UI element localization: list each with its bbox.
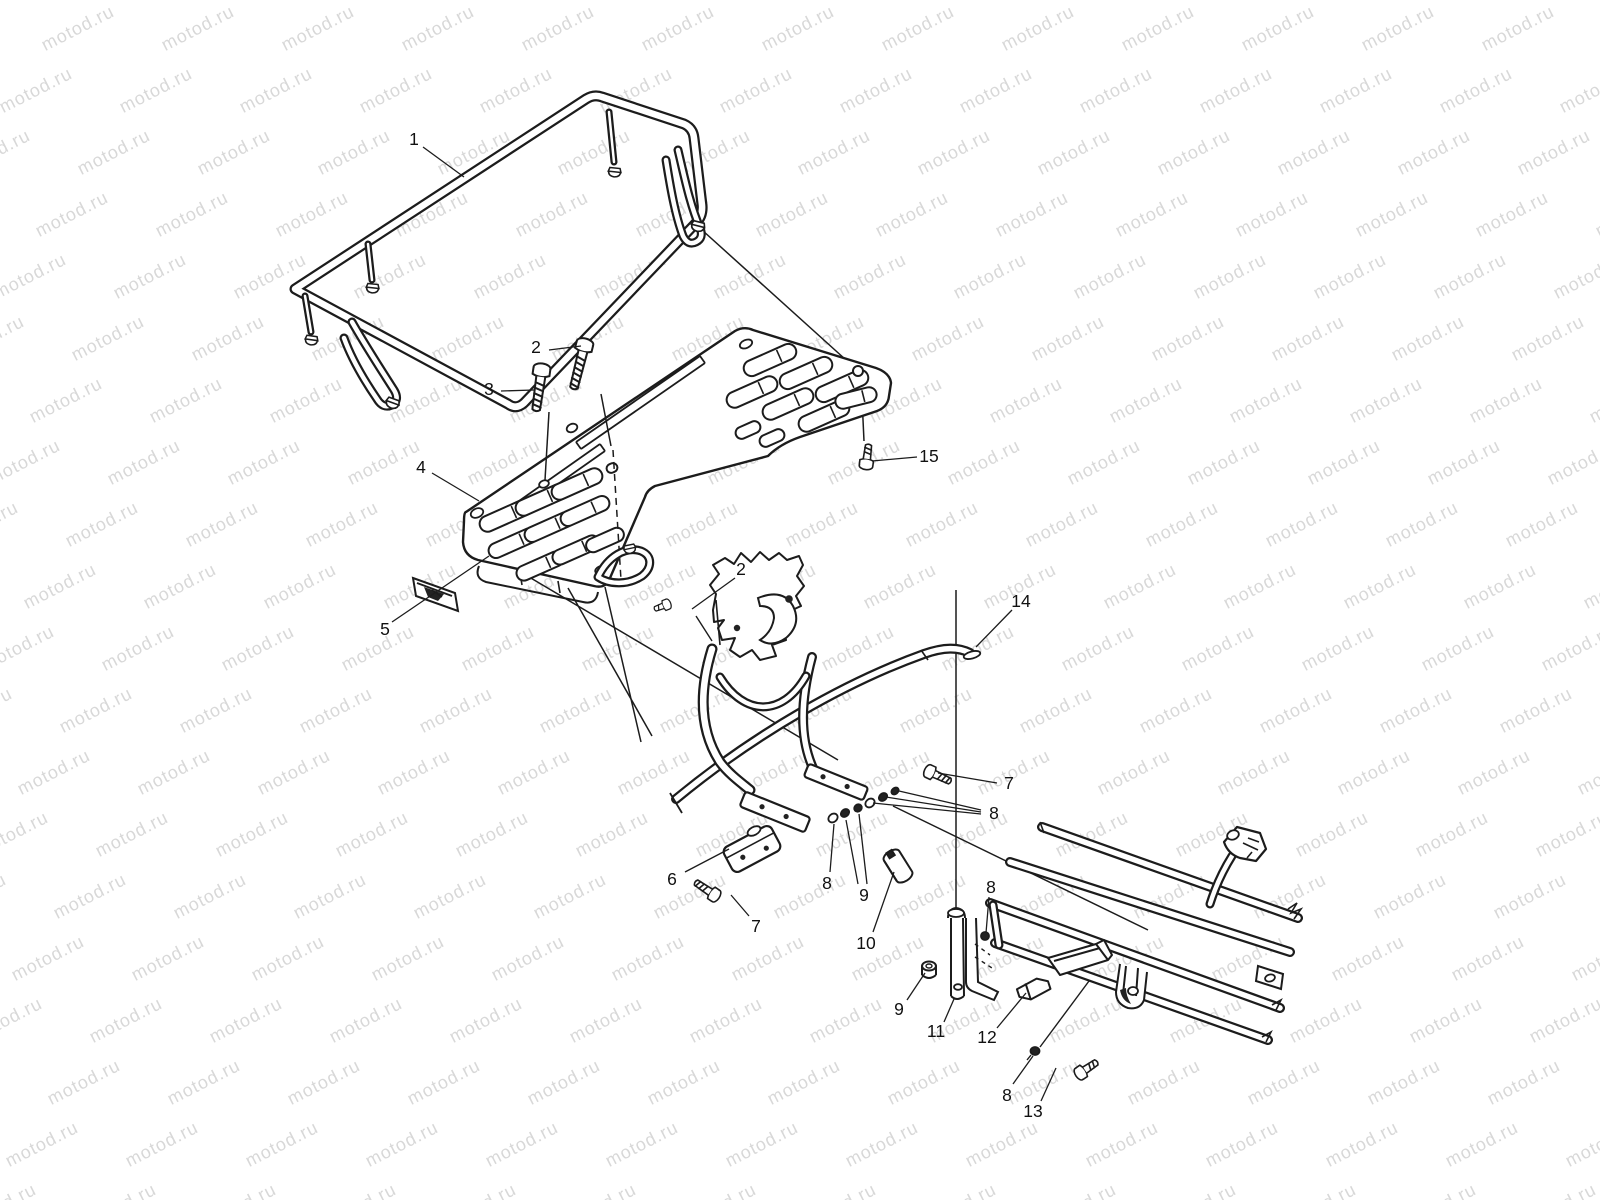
callout-leader-line <box>432 473 479 501</box>
bolt-hole <box>734 625 740 631</box>
clamp-shape <box>886 850 894 858</box>
bar-shape <box>740 791 811 832</box>
bolt-part15 <box>859 443 876 470</box>
frame-receiver-block <box>1048 940 1112 975</box>
foot-shape <box>304 335 318 346</box>
callout-leader-line <box>1041 1068 1056 1101</box>
bolt-hole <box>785 595 793 603</box>
clamp-part10 <box>881 847 914 885</box>
callout-leader-line <box>423 147 464 177</box>
part-number-callout: 9 <box>894 999 904 1019</box>
callout-leader-line <box>731 895 749 916</box>
bolt-part13 <box>1072 1056 1101 1082</box>
part-number-callout: 10 <box>856 933 876 953</box>
callout-leader-line <box>944 999 954 1022</box>
callout-leader-line <box>976 610 1012 647</box>
callout-leader-line <box>872 457 917 461</box>
part-number-callout: 15 <box>919 446 938 466</box>
mount-foot <box>304 335 318 346</box>
part-number-callout: 5 <box>380 619 390 639</box>
callout-leader-line <box>846 820 858 884</box>
parts-diagram-page: motod.rumotod.rumotod.rumotod.rumotod.ru… <box>0 0 1600 1200</box>
part-number-callout: 7 <box>751 916 761 936</box>
callout-leader-line <box>873 803 981 814</box>
projection-line-plate-to-support <box>605 587 641 742</box>
callout-leader-line <box>392 556 489 622</box>
foot-shape <box>366 283 380 293</box>
mount-foot <box>366 283 380 293</box>
washer-icon <box>839 807 850 818</box>
callout-leader-line <box>997 993 1026 1028</box>
callout-leader-line <box>1013 1056 1033 1084</box>
exploded-parts-diagram: 123452147868910789111281315 <box>0 0 1600 1200</box>
washer-icon <box>981 932 989 940</box>
bolt-axis-line <box>696 616 712 641</box>
post-hole <box>954 984 962 990</box>
part-number-callout: 8 <box>986 877 996 897</box>
mount-foot <box>608 167 622 177</box>
plate-hole <box>565 422 578 434</box>
part-number-callout: 4 <box>416 457 426 477</box>
part-number-callout: 11 <box>927 1021 945 1041</box>
post-top-cap <box>948 909 964 917</box>
clevis-hole <box>1128 987 1138 995</box>
support-mount-bar <box>804 764 869 801</box>
bar-shape <box>804 764 869 801</box>
part-number-callout: 1 <box>409 129 419 149</box>
part-number-callout: 7 <box>1004 773 1014 793</box>
part-number-callout: 2 <box>736 559 746 579</box>
part-number-callout: 8 <box>1002 1085 1012 1105</box>
lip-tick <box>558 581 560 593</box>
support-mount-bar <box>740 791 811 832</box>
part-number-callout: 2 <box>531 337 541 357</box>
part-number-callout: 8 <box>822 873 832 893</box>
bolt-part2 <box>565 337 594 392</box>
bolt-part2-small <box>653 598 673 614</box>
callout-leader-line <box>873 872 894 932</box>
frame-rail-core <box>1010 862 1290 952</box>
washer-icon <box>1031 1047 1040 1055</box>
washer-icon <box>853 803 864 814</box>
washer-icon <box>827 812 840 825</box>
plate-hole <box>853 366 863 376</box>
part-number-callout: 13 <box>1023 1101 1042 1121</box>
hitch-clevis-bracket <box>1116 964 1147 1008</box>
washer-icon <box>890 786 900 796</box>
part-number-callout: 3 <box>484 379 494 399</box>
callout-leader-line <box>907 973 925 1000</box>
bolt-part7 <box>922 763 954 787</box>
bolt-shape <box>693 879 712 895</box>
part-number-callout: 14 <box>1011 591 1031 611</box>
support-cross-tube-core <box>720 676 806 707</box>
bolt-part7 <box>691 876 722 903</box>
callout-leader-line <box>859 814 867 884</box>
callout-leader-line <box>685 849 729 872</box>
foot-shape <box>608 167 622 177</box>
part-number-callout: 6 <box>667 869 677 889</box>
part-number-callout: 12 <box>977 1027 996 1047</box>
part-number-callout: 8 <box>989 803 999 823</box>
callout-leader-line <box>830 824 834 872</box>
bolt-part3 <box>528 362 552 412</box>
nut-icon <box>922 962 936 971</box>
part-number-callout: 9 <box>859 885 869 905</box>
